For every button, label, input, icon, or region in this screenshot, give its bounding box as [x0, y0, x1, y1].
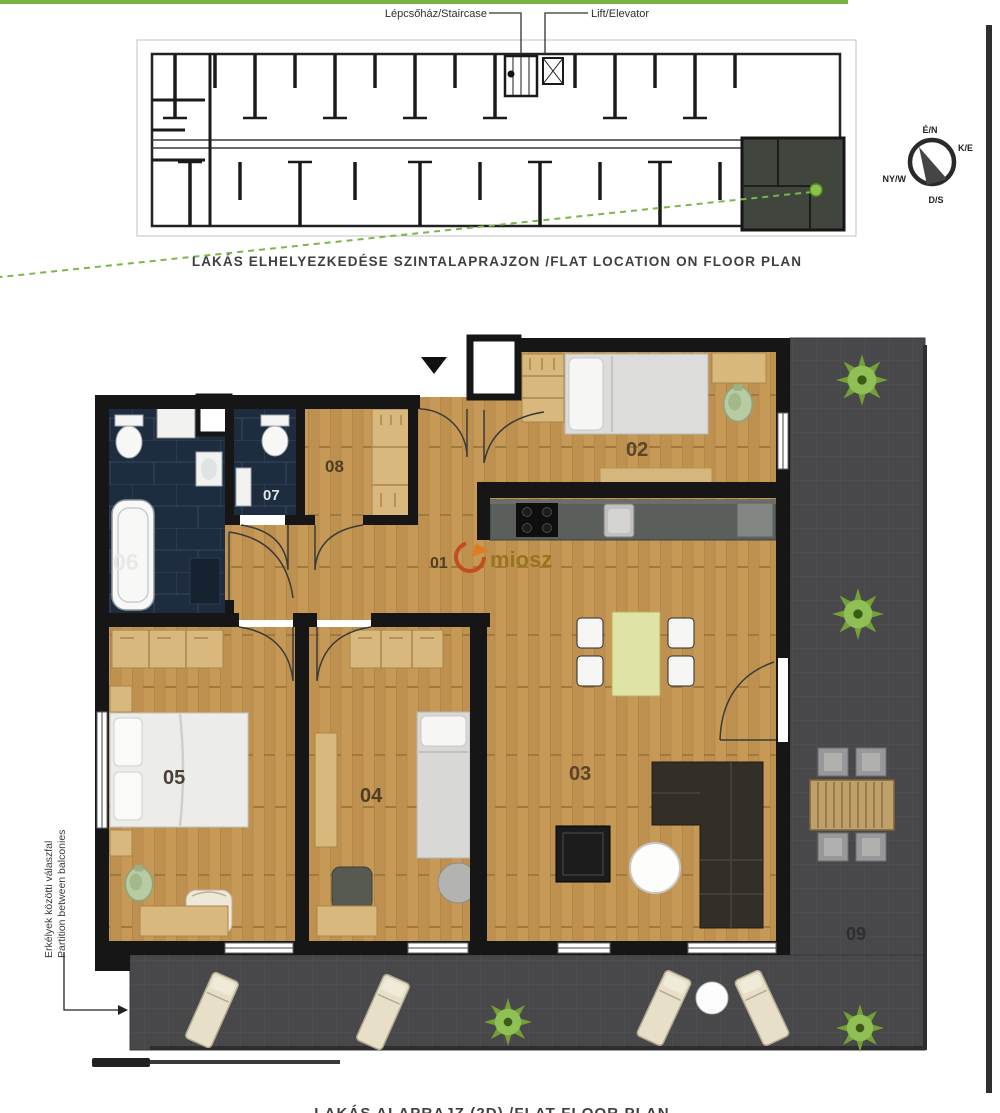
cabinet	[140, 906, 228, 936]
room-label-06: 06	[113, 549, 139, 575]
room-label-01: 01	[430, 555, 448, 572]
washing-machine	[190, 558, 220, 604]
toilet	[115, 415, 143, 426]
terrace-edge-mark	[92, 1058, 150, 1067]
compass-west: NY/W	[883, 174, 907, 184]
fridge	[737, 503, 773, 537]
room-label-04: 04	[360, 785, 383, 807]
bedside-table	[110, 686, 132, 712]
compass-south: D/S	[928, 195, 943, 205]
dining-chair	[668, 656, 694, 686]
overview-plan: Lépcsőház/Staircase Lift/Elevator	[0, 8, 856, 277]
room-label-02: 02	[626, 439, 648, 461]
desk	[317, 906, 377, 936]
plant-icon	[836, 354, 888, 406]
wardrobe	[350, 630, 443, 668]
lift-marker	[543, 58, 563, 84]
compass: É/N K/E D/S NY/W	[883, 125, 974, 205]
compass-north: É/N	[922, 125, 937, 135]
balcony-partition-wall	[95, 955, 130, 971]
annotation-line-2: Partition between balconies	[56, 830, 68, 958]
flat-location-marker	[810, 184, 822, 196]
room-label-05: 05	[163, 767, 185, 789]
terrace-railing-bottom	[150, 1046, 927, 1050]
plant-icon	[832, 588, 884, 640]
room-label-03: 03	[569, 763, 591, 785]
room-label-07: 07	[263, 487, 280, 504]
cooktop	[516, 503, 558, 537]
dining-chair	[577, 618, 603, 648]
floor-plan-page: Lépcsőház/Staircase Lift/Elevator É/N K/…	[0, 0, 1000, 1113]
kitchen	[490, 500, 776, 540]
staircase-marker	[505, 56, 537, 96]
terrace-side-table	[696, 982, 728, 1014]
watermark-text: miosz	[490, 547, 552, 572]
lift-label: Lift/Elevator	[591, 8, 649, 20]
dining-chair	[577, 656, 603, 686]
top-green-bar	[0, 0, 848, 4]
wardrobe	[372, 409, 410, 523]
plant-icon	[836, 1004, 884, 1052]
staircase-label: Lépcsőház/Staircase	[385, 8, 487, 20]
terrace-door-opening	[778, 658, 788, 742]
entrance-arrow-icon	[421, 357, 447, 374]
compass-east: K/E	[958, 143, 973, 153]
washbasin	[236, 468, 251, 506]
toilet	[261, 415, 289, 426]
desk-chair	[332, 867, 372, 909]
terrace-railing-right	[923, 345, 927, 1050]
dining-chair	[668, 618, 694, 648]
room-label-09: 09	[846, 924, 866, 944]
floor-plan-canvas: Lépcsőház/Staircase Lift/Elevator É/N K/…	[0, 0, 1000, 1113]
room-01-corridor-floor	[225, 525, 490, 620]
svg-text:Erkélyek közötti válaszfal: Erkélyek közötti válaszfal Partition bet…	[43, 830, 68, 958]
room-label-08: 08	[325, 457, 344, 476]
entry-shaft	[470, 338, 518, 397]
dining-table	[612, 612, 660, 696]
bedside-table	[110, 830, 132, 856]
coffee-table	[630, 843, 680, 893]
plant-icon	[484, 998, 532, 1046]
top-caption: LAKÁS ELHELYEZKEDÉSE SZINTALAPRAJZON /FL…	[192, 254, 802, 269]
tv-stand	[556, 826, 610, 882]
page-edge-line	[986, 25, 992, 1093]
annotation-arrow-icon	[118, 1005, 128, 1015]
bedside-table	[712, 353, 766, 383]
cabinet	[315, 733, 337, 847]
highlighted-flat	[742, 138, 844, 230]
annotation-line-1: Erkélyek közötti válaszfal	[43, 841, 55, 958]
bottom-caption: LAKÁS ALAPRAJZ (2D) /FLAT FLOOR PLAN	[314, 1105, 669, 1113]
wardrobe	[112, 630, 223, 668]
